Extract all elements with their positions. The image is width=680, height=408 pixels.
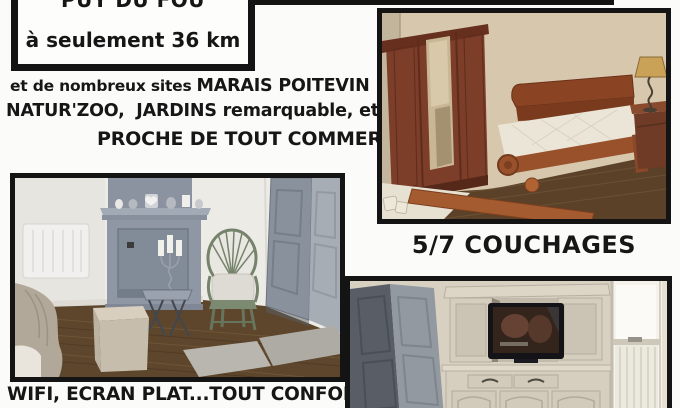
living-room-photo — [10, 173, 345, 382]
badge-subtitle: à seulement 36 km — [18, 25, 248, 55]
rental-flyer-collage: PUY DU FOU à seulement 36 km et de nombr… — [0, 0, 680, 408]
bedroom-photo — [377, 8, 671, 224]
description-line-2: NATUR'ZOO, JARDINS remarquable, etc — [6, 101, 389, 121]
tv-room-scene — [350, 281, 667, 408]
radiator — [23, 224, 89, 278]
comfort-caption: WIFI, ECRAN PLAT...TOUT CONFORT — [7, 384, 369, 405]
description-line-3: PROCHE DE TOUT COMMERCE — [97, 128, 408, 150]
tv-cabinet — [442, 284, 614, 408]
chair-cushion — [212, 274, 254, 302]
tv-room-photo — [345, 276, 672, 408]
ottoman — [93, 306, 149, 372]
cropped-frame-edge — [249, 0, 614, 5]
flat-screen-tv — [488, 303, 564, 363]
living-room-scene — [15, 178, 340, 377]
description-line-1-prefix: et de nombreux sites — [10, 77, 192, 95]
description-line-1: et de nombreux sitesMARAIS POITEVIN — [10, 76, 370, 96]
bright-window — [612, 281, 662, 408]
badge-title: PUY DU FOU — [18, 0, 248, 13]
wardrobe — [382, 24, 489, 203]
distance-badge: PUY DU FOU à seulement 36 km — [11, 0, 255, 71]
gray-doors — [266, 178, 340, 333]
description-line-1-caps: MARAIS POITEVIN — [197, 76, 370, 96]
bedroom-scene — [382, 13, 666, 219]
sleeps-caption: 5/7 COUCHAGES — [377, 231, 671, 259]
white-gate — [613, 337, 660, 408]
